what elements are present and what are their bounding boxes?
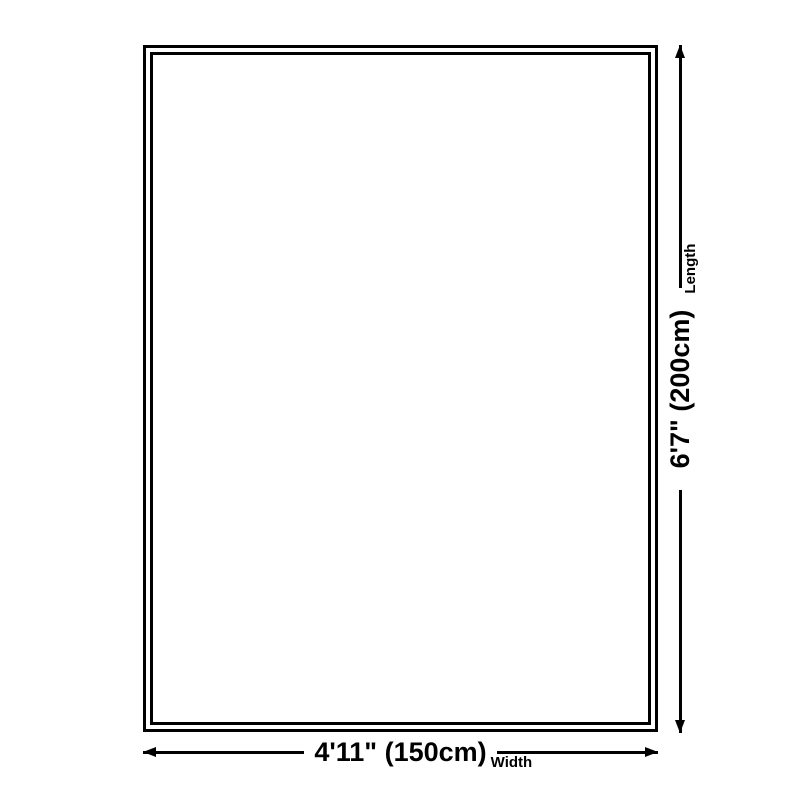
up-arrowhead-icon xyxy=(675,45,685,58)
down-arrowhead-icon xyxy=(675,720,685,733)
length-dimension-row: 6'7" (200cm) Length xyxy=(650,45,710,733)
width-axis-label: Width xyxy=(491,755,533,770)
width-arrow-line-left xyxy=(143,722,304,782)
length-axis-label: Length xyxy=(683,244,698,294)
left-arrowhead-icon xyxy=(143,747,156,757)
width-dimension-arrow: 4'11" (150cm) Width xyxy=(143,722,658,782)
width-arrow-line-right: Width xyxy=(497,722,658,782)
width-dimension-row: 4'11" (150cm) Width xyxy=(143,722,658,782)
width-value: 4'11" (150cm) xyxy=(314,739,486,766)
size-diagram: 4'11" (150cm) Width 6'7" (200cm) Length xyxy=(0,0,800,800)
length-value: 6'7" (200cm) xyxy=(667,310,694,469)
rug-outline-inner xyxy=(150,52,651,725)
rug-outline-outer xyxy=(143,45,658,732)
length-arrow-line-bottom xyxy=(650,490,710,733)
right-arrowhead-icon xyxy=(645,747,658,757)
length-dimension-arrow: 6'7" (200cm) Length xyxy=(650,45,710,733)
length-arrow-line-top: Length xyxy=(650,45,710,288)
